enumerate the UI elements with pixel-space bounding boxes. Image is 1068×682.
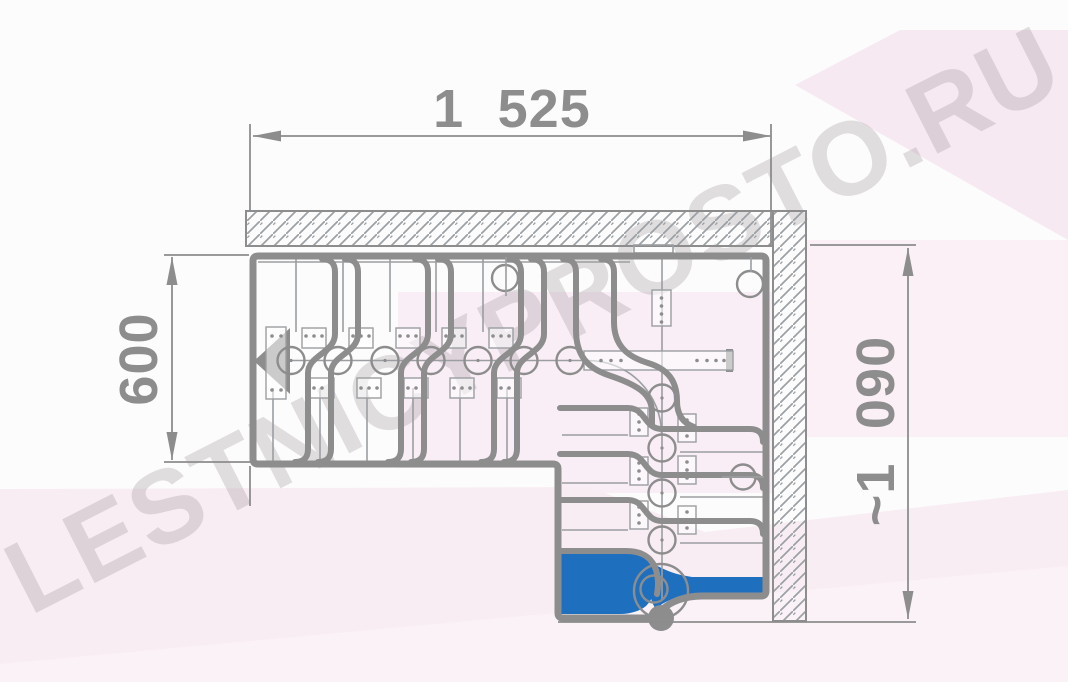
screw-dot	[660, 304, 664, 308]
right-wall	[773, 211, 806, 621]
screw-dot	[660, 320, 664, 324]
screw-dot	[406, 334, 410, 338]
arrowhead-left-icon	[253, 131, 281, 142]
screw-dot	[685, 510, 689, 514]
dimension-label-left: 600	[109, 312, 169, 405]
screw-dot	[507, 334, 511, 338]
joint-center-dot	[660, 538, 663, 541]
dimension-label-right: ~1 090	[846, 336, 906, 526]
screw-dot	[270, 334, 274, 338]
dimension-label-top: 1 525	[433, 79, 591, 139]
screw-dot	[367, 386, 371, 390]
screw-dot	[507, 386, 511, 390]
joint-center-dot	[568, 359, 571, 362]
screw-dot	[279, 334, 283, 338]
screw-dot	[320, 386, 324, 390]
screw-dot	[367, 334, 371, 338]
screw-dot	[685, 526, 689, 530]
plan-canvas: LESTNICYPROSTO.RU	[0, 0, 1068, 682]
joint-center-dot	[289, 359, 292, 362]
arrowhead-up-icon	[167, 257, 178, 285]
joint-center-dot	[383, 359, 386, 362]
staircase-plan-drawing: LESTNICYPROSTO.RU	[0, 0, 1068, 682]
screw-dot	[714, 359, 718, 363]
screw-dot	[637, 428, 641, 432]
screw-dot	[685, 434, 689, 438]
screw-dot	[619, 359, 623, 363]
screw-dot	[279, 388, 283, 392]
joint-center-dot	[660, 396, 663, 399]
screw-dot	[637, 513, 641, 517]
screw-dot	[609, 359, 613, 363]
screw-dot	[320, 334, 324, 338]
newel-post	[648, 605, 674, 631]
joint-center-dot	[660, 491, 663, 494]
screw-dot	[270, 388, 274, 392]
mounting-plate	[396, 328, 420, 348]
joint-center-dot	[660, 446, 663, 449]
mounting-plate	[302, 328, 326, 348]
screw-dot	[414, 334, 418, 338]
screw-dot	[414, 386, 418, 390]
joint-center-dot	[476, 359, 479, 362]
screw-dot	[637, 469, 641, 473]
screw-dot	[460, 386, 464, 390]
screw-dot	[722, 359, 726, 363]
screw-dot	[452, 386, 456, 390]
screw-dot	[660, 296, 664, 300]
screw-dot	[312, 386, 316, 390]
screw-dot	[304, 334, 308, 338]
screw-dot	[705, 359, 709, 363]
screw-dot	[499, 386, 503, 390]
screw-dot	[351, 334, 355, 338]
screw-dot	[685, 460, 689, 464]
screw-dot	[599, 359, 603, 363]
screw-dot	[660, 312, 664, 316]
screw-dot	[468, 386, 472, 390]
mounting-plate	[489, 328, 513, 348]
screw-dot	[637, 420, 641, 424]
top-wall	[246, 211, 773, 246]
screw-dot	[637, 521, 641, 525]
screw-dot	[398, 334, 402, 338]
screw-dot	[359, 386, 363, 390]
screw-dot	[460, 334, 464, 338]
screw-dot	[491, 334, 495, 338]
screw-dot	[375, 386, 379, 390]
screw-dot	[499, 334, 503, 338]
screw-dot	[444, 334, 448, 338]
screw-dot	[406, 386, 410, 390]
screw-dot	[695, 359, 699, 363]
screw-dot	[685, 468, 689, 472]
screw-dot	[637, 477, 641, 481]
start-anchor-plate	[266, 327, 286, 399]
screw-dot	[312, 334, 316, 338]
